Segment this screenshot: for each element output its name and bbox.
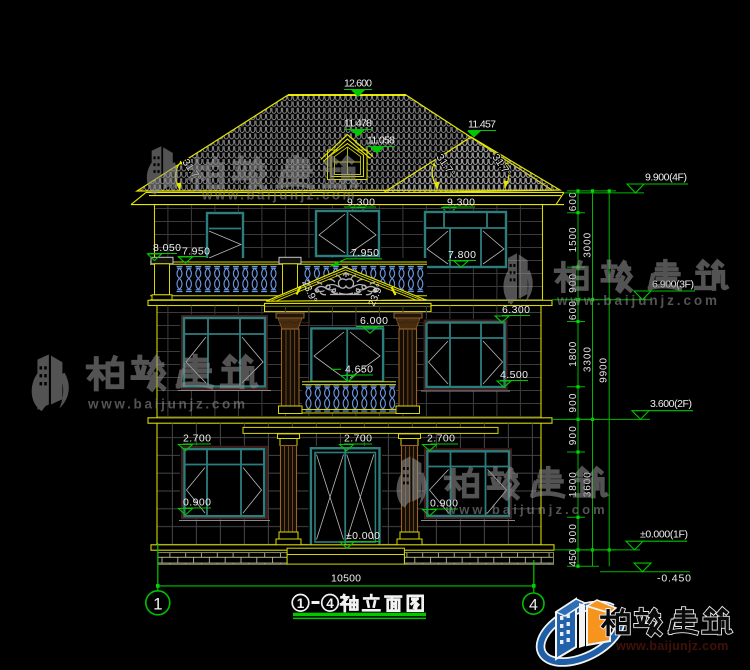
svg-text:11.457: 11.457 xyxy=(468,119,496,131)
svg-text:1500: 1500 xyxy=(568,227,579,252)
svg-text:6.000: 6.000 xyxy=(360,315,388,327)
svg-text:7.800: 7.800 xyxy=(448,249,476,261)
svg-text:12.600: 12.600 xyxy=(344,78,372,90)
svg-text:2.700: 2.700 xyxy=(344,433,372,445)
svg-text:2.700: 2.700 xyxy=(183,433,211,445)
svg-text:www.baijunjz.com: www.baijunjz.com xyxy=(615,639,729,653)
svg-text:3.600(2F): 3.600(2F) xyxy=(650,398,692,410)
svg-text:www.baijunjz.com: www.baijunjz.com xyxy=(445,502,608,517)
svg-text:7.950: 7.950 xyxy=(182,246,210,258)
svg-text:0.900: 0.900 xyxy=(183,497,211,509)
svg-text:3000: 3000 xyxy=(583,232,594,257)
svg-text:6.300: 6.300 xyxy=(502,304,530,316)
svg-text:www.baijunjz.com: www.baijunjz.com xyxy=(201,188,357,203)
svg-text:www.baijunjz.com: www.baijunjz.com xyxy=(556,293,720,308)
svg-text:±0.000: ±0.000 xyxy=(346,530,380,542)
svg-text:11.478: 11.478 xyxy=(344,118,372,130)
svg-text:±0.000(1F): ±0.000(1F) xyxy=(640,529,688,541)
svg-text:4.650: 4.650 xyxy=(345,364,373,376)
svg-text:900: 900 xyxy=(568,524,579,543)
svg-text:-0.450: -0.450 xyxy=(657,573,691,585)
svg-text:7.950: 7.950 xyxy=(351,247,379,259)
svg-text:8.050: 8.050 xyxy=(153,242,181,254)
svg-text:1: 1 xyxy=(153,595,162,614)
svg-text:4: 4 xyxy=(326,596,334,611)
svg-text:450: 450 xyxy=(568,549,579,566)
svg-text:900: 900 xyxy=(568,393,579,412)
svg-text:3300: 3300 xyxy=(583,347,594,372)
svg-text:11.058: 11.058 xyxy=(367,135,395,147)
svg-text:9900: 9900 xyxy=(599,357,610,382)
svg-text:1: 1 xyxy=(297,596,305,611)
svg-text:4: 4 xyxy=(529,597,538,614)
svg-text:9.900(4F): 9.900(4F) xyxy=(645,172,687,184)
svg-text:600: 600 xyxy=(568,192,579,211)
svg-text:www.baijunjz.com: www.baijunjz.com xyxy=(87,397,248,412)
svg-text:10500: 10500 xyxy=(331,573,361,585)
svg-text:4.500: 4.500 xyxy=(500,369,528,381)
svg-text:900: 900 xyxy=(568,426,579,445)
svg-text:1800: 1800 xyxy=(568,341,579,366)
svg-text:2.700: 2.700 xyxy=(427,433,455,445)
